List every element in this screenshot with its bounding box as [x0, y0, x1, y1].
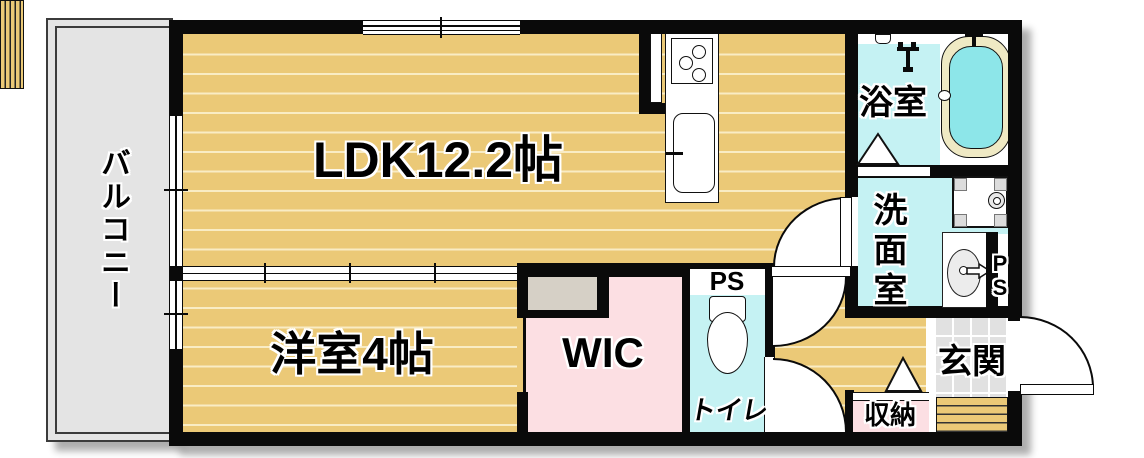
ldk-left-window-tick	[164, 189, 188, 191]
bath-door-triangle-marker	[856, 132, 900, 166]
kitchen-counter-hatch	[0, 0, 24, 89]
hall-door-leaf	[771, 266, 851, 277]
ps-shaft-letter-p: P	[993, 253, 1008, 275]
ldk-label: LDK12.2帖	[313, 135, 563, 185]
pan-corner-tl	[954, 178, 967, 191]
washroom-door-leaf	[840, 197, 852, 267]
stove-burner-2	[679, 56, 693, 70]
balcony-label: バルコニー	[97, 148, 127, 313]
washroom-label: 洗面室	[870, 192, 904, 312]
pan-corner-br	[994, 214, 1007, 227]
tub-side-knob	[938, 90, 951, 101]
toilet-ps-label: PS	[710, 268, 745, 294]
stove-burner-1	[692, 45, 706, 59]
outer-wall-left-upper	[169, 20, 183, 116]
ldk-left-window-line	[175, 116, 177, 266]
entrance-door-leaf	[1020, 384, 1094, 395]
outer-wall-bottom	[169, 432, 1022, 446]
pan-drain-inner	[993, 197, 1001, 205]
sink-faucet-icon	[666, 152, 683, 155]
entrance-label: 玄関	[938, 345, 1006, 379]
western-room-label: 洋室4帖	[270, 331, 434, 377]
entrance-door-swing-arc	[1020, 316, 1094, 388]
kitchen-partition-wall	[639, 34, 650, 103]
wic-opening-pink	[526, 318, 529, 392]
kitchen-partition-panel	[650, 30, 662, 103]
wic-nook-stub	[597, 277, 609, 318]
bath-door-band	[858, 166, 930, 177]
kitchen-partition-stub	[639, 103, 665, 114]
wash-bowl-icon	[875, 34, 891, 44]
entrance-step-band	[926, 318, 936, 397]
pan-corner-tr	[994, 178, 1007, 191]
floor-plan: バルコニー LDK12.2帖 洋室4帖 WIC PS トイレ 浴室 洗面室 玄関…	[0, 0, 1144, 458]
shower-handle-left	[898, 42, 903, 47]
storage-label: 収納	[864, 402, 916, 428]
shoe-cabinet	[936, 397, 1008, 435]
outer-wall-left-stub	[169, 266, 183, 281]
storage-door-triangle-marker	[884, 356, 923, 393]
shower-handle-right	[911, 42, 916, 47]
top-window-tick	[440, 17, 442, 38]
washroom-west-wall-upper	[845, 178, 858, 197]
pan-corner-bl	[954, 214, 967, 227]
wic-nook	[528, 277, 598, 311]
wic-label: WIC	[562, 332, 644, 374]
bathtub-water	[949, 46, 1003, 149]
bath-label: 浴室	[859, 86, 927, 120]
partition-tick-1	[264, 263, 266, 283]
wic-thin-partition	[523, 318, 526, 392]
ps-shaft-letter-s: S	[993, 277, 1008, 299]
storage-right-band	[929, 397, 936, 435]
shower-head	[903, 67, 913, 72]
bedroom-left-window-line	[175, 281, 177, 349]
ps-shaft-label: P S	[993, 253, 1008, 299]
wic-nook-wall	[528, 310, 600, 318]
stove-burner-3	[692, 68, 706, 82]
outer-wall-top	[171, 20, 1022, 34]
toilet-label: トイレ	[688, 397, 771, 423]
shower-stem	[906, 51, 910, 67]
tub-faucet-stem	[972, 37, 976, 46]
partition-tick-2	[349, 263, 351, 283]
bedroom-left-window-tick	[164, 313, 188, 315]
partition-tick-3	[434, 263, 436, 283]
